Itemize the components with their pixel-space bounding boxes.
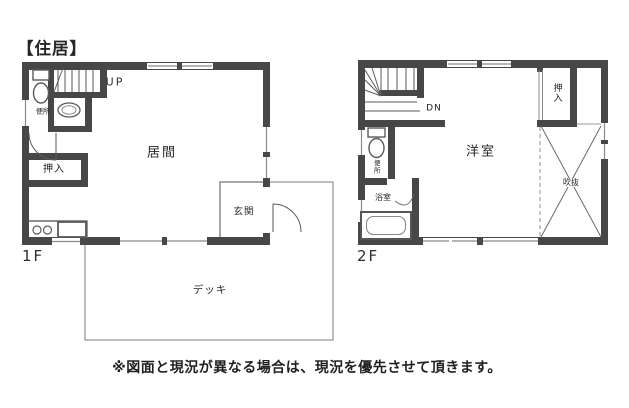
- kitchen-counter: [29, 221, 87, 238]
- toilet-fixture-1f: [33, 70, 49, 103]
- toilet-bowl: [34, 83, 49, 103]
- toilet-tank: [33, 70, 49, 80]
- wall-segment: [48, 126, 92, 132]
- room-label-closet-2f: 押入: [552, 83, 561, 103]
- wall-segment: [22, 126, 29, 132]
- stair-wall: [358, 120, 445, 127]
- room-label-entrance: 玄関: [233, 207, 254, 217]
- window-mullion: [263, 152, 270, 157]
- closet-wall: [570, 60, 577, 127]
- deck-outline: [85, 182, 333, 340]
- closet-wall: [537, 120, 577, 127]
- floor2-label: 2F: [357, 249, 379, 264]
- stair-wall: [417, 60, 424, 98]
- toilet-bowl: [369, 139, 384, 158]
- bath-wall: [412, 178, 419, 245]
- stair-treads: [58, 70, 93, 92]
- closet-wall: [22, 180, 88, 187]
- basin-inner: [62, 106, 76, 114]
- toilet-tank: [368, 128, 385, 137]
- wall-segment: [48, 92, 107, 98]
- stair-direction-up-label: UP: [106, 77, 125, 88]
- floor-plan-sheet: 【住居】 UP 便所 居間 押入 玄関 1F デッキ DN 押入 洋室 便所 吹…: [0, 0, 629, 408]
- stair-treads: [365, 102, 420, 111]
- entrance-door-opening: [263, 187, 270, 233]
- room-label-living: 居間: [147, 147, 177, 160]
- deck-label: デッキ: [193, 285, 228, 296]
- sheet-title: 【住居】: [17, 41, 87, 58]
- room-label-bath: 浴室: [375, 194, 391, 202]
- window-mullion: [601, 140, 608, 144]
- stove-burner: [44, 226, 52, 234]
- room-label-toilet-2f: 便所: [373, 160, 380, 175]
- window-mullion: [477, 237, 483, 245]
- bath-door-opening: [387, 179, 412, 184]
- room-label-toilet-1f: 便所: [36, 109, 50, 116]
- disclaimer-note: ※図面と現況が異なる場合は、現況を優先させて頂きます。: [112, 361, 502, 375]
- stove-burner: [33, 226, 41, 234]
- window-mullion: [177, 62, 182, 70]
- floor1-label: 1F: [22, 249, 44, 264]
- floor-plan-drawing: [0, 0, 629, 408]
- room-label-void: 吹抜: [562, 179, 580, 187]
- washbasin-fixture: [58, 103, 80, 117]
- window-mullion: [477, 60, 482, 68]
- bathtub-fixture: [361, 212, 411, 239]
- kitchen-sink: [58, 222, 86, 237]
- room-label-western-room: 洋室: [466, 146, 496, 159]
- toilet-fixture-2f: [368, 128, 385, 158]
- stair-winder-fan: [365, 68, 381, 96]
- bath-label-leader-line: [395, 194, 414, 205]
- floor1-staircase: [54, 68, 93, 92]
- closet-wall: [22, 153, 88, 160]
- entrance-door-swing: [273, 204, 301, 232]
- stair-newel-wall: [380, 90, 417, 96]
- wall-segment: [388, 120, 395, 182]
- wall-segment: [22, 62, 270, 70]
- floor2-staircase: [365, 68, 420, 111]
- room-label-closet-1f: 押入: [43, 165, 65, 175]
- stair-direction-down-label: DN: [426, 105, 442, 114]
- closet-sliding-door: [539, 70, 543, 120]
- bath-wall: [358, 178, 387, 185]
- window-mullion: [162, 237, 167, 245]
- stair-treads: [388, 68, 414, 90]
